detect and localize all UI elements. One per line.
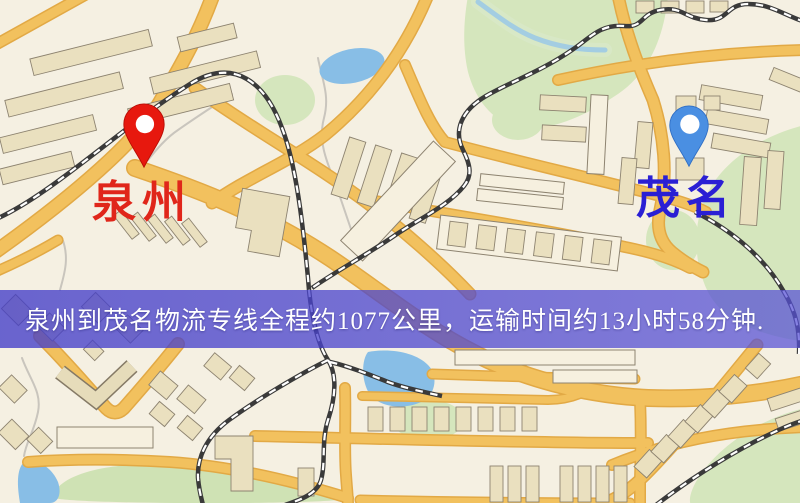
destination-pin[interactable] — [668, 104, 710, 169]
destination-label: 茂名 — [636, 177, 736, 221]
red-pin-icon — [122, 102, 166, 170]
blue-pin-icon — [668, 104, 710, 169]
info-banner: 泉州到茂名物流专线全程约1077公里，运输时间约13小时58分钟. — [0, 290, 800, 348]
logistics-route-map: 泉州 茂名 泉州到茂名物流专线全程约1077公里，运输时间约13小时58分钟. — [0, 0, 800, 503]
origin-pin[interactable] — [122, 102, 166, 170]
banner-text: 泉州到茂名物流专线全程约1077公里，运输时间约13小时58分钟. — [0, 301, 764, 337]
map-canvas — [0, 0, 800, 503]
origin-label: 泉州 — [92, 181, 192, 225]
